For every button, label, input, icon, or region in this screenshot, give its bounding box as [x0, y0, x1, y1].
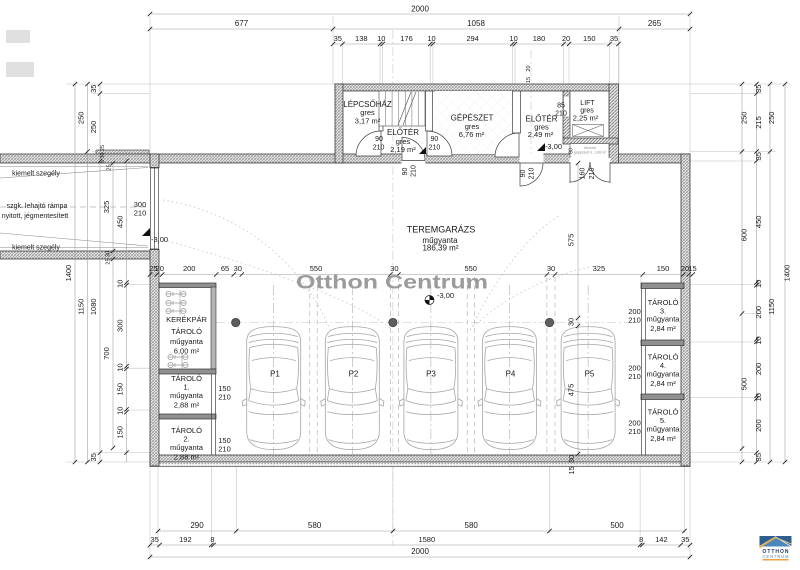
- svg-text:LIFT: LIFT: [580, 100, 595, 107]
- svg-text:150: 150: [116, 383, 125, 396]
- svg-text:250: 250: [89, 121, 98, 134]
- svg-text:142: 142: [655, 535, 668, 544]
- svg-text:műgyanta: műgyanta: [647, 370, 681, 379]
- svg-text:35: 35: [754, 85, 763, 93]
- svg-text:20: 20: [526, 65, 532, 71]
- svg-text:műgyanta: műgyanta: [647, 315, 681, 324]
- svg-text:felvonó: felvonó: [584, 146, 596, 150]
- svg-text:150: 150: [657, 264, 670, 273]
- svg-text:műgyanta: műgyanta: [170, 443, 204, 452]
- svg-text:180: 180: [533, 34, 546, 43]
- svg-text:6,76 m²: 6,76 m²: [459, 130, 485, 139]
- svg-text:P4: P4: [506, 370, 516, 379]
- svg-text:10: 10: [116, 280, 125, 288]
- svg-text:1400: 1400: [64, 265, 73, 282]
- svg-text:250: 250: [740, 112, 749, 125]
- svg-text:Otthon Centrum: Otthon Centrum: [296, 273, 488, 294]
- svg-text:150: 150: [583, 34, 596, 43]
- svg-text:3,17 m²: 3,17 m²: [355, 117, 381, 126]
- svg-text:2000: 2000: [411, 5, 429, 14]
- svg-text:25: 25: [100, 145, 106, 151]
- svg-text:325: 325: [102, 201, 111, 214]
- svg-text:210: 210: [373, 145, 385, 152]
- svg-text:210: 210: [410, 165, 417, 177]
- svg-text:35: 35: [151, 535, 159, 544]
- svg-text:6,00 m²: 6,00 m²: [174, 347, 200, 356]
- svg-text:200: 200: [183, 264, 196, 273]
- svg-text:300: 300: [116, 319, 125, 332]
- svg-text:90: 90: [520, 170, 527, 178]
- svg-text:-3,00: -3,00: [151, 235, 168, 244]
- svg-text:8: 8: [639, 535, 643, 544]
- svg-text:290: 290: [190, 521, 204, 530]
- svg-text:210: 210: [218, 393, 231, 402]
- svg-text:10: 10: [754, 280, 763, 288]
- svg-text:15: 15: [526, 77, 532, 83]
- svg-text:580: 580: [308, 521, 322, 530]
- svg-text:30: 30: [100, 152, 106, 158]
- svg-text:200: 200: [754, 306, 763, 319]
- svg-text:2,88 m²: 2,88 m²: [174, 453, 200, 462]
- svg-text:1580: 1580: [418, 535, 435, 544]
- svg-text:210: 210: [528, 168, 535, 180]
- svg-text:160: 160: [579, 168, 586, 180]
- svg-text:138: 138: [355, 34, 368, 43]
- svg-text:580: 580: [465, 521, 479, 530]
- svg-text:192: 192: [179, 535, 192, 544]
- svg-text:90: 90: [431, 136, 439, 143]
- svg-text:kiemelt szegély: kiemelt szegély: [12, 245, 60, 252]
- svg-text:TEREMGARÁZS: TEREMGARÁZS: [407, 225, 476, 235]
- svg-text:10: 10: [509, 34, 517, 43]
- svg-text:176: 176: [400, 34, 413, 43]
- svg-text:2000: 2000: [411, 547, 429, 556]
- svg-text:gépészeti h. 1,08 m²: gépészeti h. 1,08 m²: [574, 151, 607, 155]
- svg-text:30: 30: [106, 251, 112, 257]
- svg-text:1400: 1400: [783, 265, 792, 282]
- svg-text:575: 575: [567, 234, 576, 247]
- svg-text:80: 80: [569, 148, 575, 154]
- svg-text:15: 15: [567, 466, 576, 474]
- svg-text:500: 500: [740, 378, 749, 391]
- svg-text:25: 25: [106, 258, 112, 264]
- svg-text:1080: 1080: [89, 298, 98, 315]
- svg-text:210: 210: [134, 209, 147, 218]
- svg-text:250: 250: [767, 112, 776, 125]
- svg-text:450: 450: [754, 216, 763, 229]
- svg-text:210: 210: [589, 168, 596, 180]
- svg-text:90: 90: [402, 168, 409, 176]
- svg-text:450: 450: [116, 216, 125, 229]
- svg-text:30: 30: [567, 455, 576, 463]
- svg-text:nyitott, jégmentesített: nyitott, jégmentesített: [2, 213, 69, 220]
- svg-text:2,19 m²: 2,19 m²: [390, 145, 416, 154]
- svg-text:210: 210: [628, 427, 641, 436]
- svg-text:10: 10: [116, 407, 125, 415]
- svg-text:P5: P5: [585, 370, 595, 379]
- svg-text:szgk. lehajtó rámpa: szgk. lehajtó rámpa: [7, 203, 68, 210]
- svg-text:200: 200: [754, 419, 763, 432]
- svg-text:15: 15: [688, 264, 696, 273]
- svg-text:2,84 m²: 2,84 m²: [650, 434, 676, 443]
- svg-text:10: 10: [427, 34, 435, 43]
- svg-text:20: 20: [156, 264, 164, 273]
- svg-text:677: 677: [235, 19, 249, 28]
- svg-text:210: 210: [628, 372, 641, 381]
- svg-text:10: 10: [377, 34, 385, 43]
- svg-text:2,49 m²: 2,49 m²: [528, 130, 554, 139]
- svg-text:25: 25: [107, 164, 113, 170]
- svg-text:65: 65: [221, 264, 229, 273]
- svg-text:1150: 1150: [77, 299, 86, 315]
- svg-text:265: 265: [648, 19, 662, 28]
- svg-text:10: 10: [754, 336, 763, 344]
- svg-text:CENTRUM: CENTRUM: [763, 554, 790, 559]
- svg-text:10: 10: [754, 393, 763, 401]
- svg-text:P3: P3: [426, 370, 436, 379]
- svg-text:10: 10: [116, 363, 125, 371]
- svg-text:150: 150: [116, 426, 125, 439]
- svg-text:90: 90: [375, 136, 383, 143]
- svg-text:35: 35: [681, 535, 689, 544]
- svg-text:2,25 m²: 2,25 m²: [573, 114, 599, 123]
- svg-text:200: 200: [754, 363, 763, 376]
- svg-text:2,84 m²: 2,84 m²: [650, 324, 676, 333]
- svg-text:műgyanta: műgyanta: [170, 391, 204, 400]
- svg-text:30: 30: [567, 318, 576, 326]
- svg-text:35: 35: [334, 34, 342, 43]
- svg-text:210: 210: [429, 145, 441, 152]
- svg-text:1058: 1058: [467, 19, 485, 28]
- svg-text:700: 700: [102, 347, 111, 360]
- svg-text:35: 35: [89, 453, 98, 461]
- svg-text:TÁROLÓ: TÁROLÓ: [171, 327, 202, 336]
- svg-text:-3,00: -3,00: [545, 142, 562, 151]
- svg-text:85: 85: [557, 103, 565, 110]
- svg-text:2,84 m²: 2,84 m²: [650, 379, 676, 388]
- svg-text:P2: P2: [349, 370, 359, 379]
- svg-text:20: 20: [562, 34, 570, 43]
- svg-text:210: 210: [628, 316, 641, 325]
- svg-text:210: 210: [218, 445, 231, 454]
- svg-text:186,39 m²: 186,39 m²: [422, 244, 458, 253]
- svg-text:500: 500: [610, 521, 624, 530]
- svg-text:műgyanta: műgyanta: [170, 337, 204, 346]
- svg-text:475: 475: [567, 384, 576, 397]
- svg-text:2,88 m²: 2,88 m²: [174, 401, 200, 410]
- svg-text:35: 35: [610, 34, 618, 43]
- svg-text:kiemelt szegély: kiemelt szegély: [12, 171, 60, 178]
- svg-text:1150: 1150: [767, 299, 776, 315]
- svg-text:35: 35: [89, 85, 98, 93]
- svg-text:30: 30: [234, 264, 242, 273]
- svg-text:215: 215: [754, 116, 763, 129]
- svg-text:5: 5: [100, 160, 106, 163]
- svg-text:250: 250: [77, 112, 86, 125]
- svg-text:ELŐTÉR: ELŐTÉR: [387, 128, 419, 137]
- svg-text:35: 35: [754, 152, 763, 160]
- svg-text:műgyanta: műgyanta: [647, 425, 681, 434]
- svg-text:30: 30: [547, 264, 555, 273]
- svg-text:600: 600: [740, 229, 749, 242]
- svg-text:35: 35: [754, 453, 763, 461]
- svg-text:KERÉKPÁR: KERÉKPÁR: [166, 315, 207, 324]
- svg-text:8: 8: [210, 535, 214, 544]
- svg-text:325: 325: [593, 264, 606, 273]
- svg-text:294: 294: [466, 34, 479, 43]
- svg-text:P1: P1: [270, 370, 280, 379]
- svg-text:210: 210: [555, 111, 567, 118]
